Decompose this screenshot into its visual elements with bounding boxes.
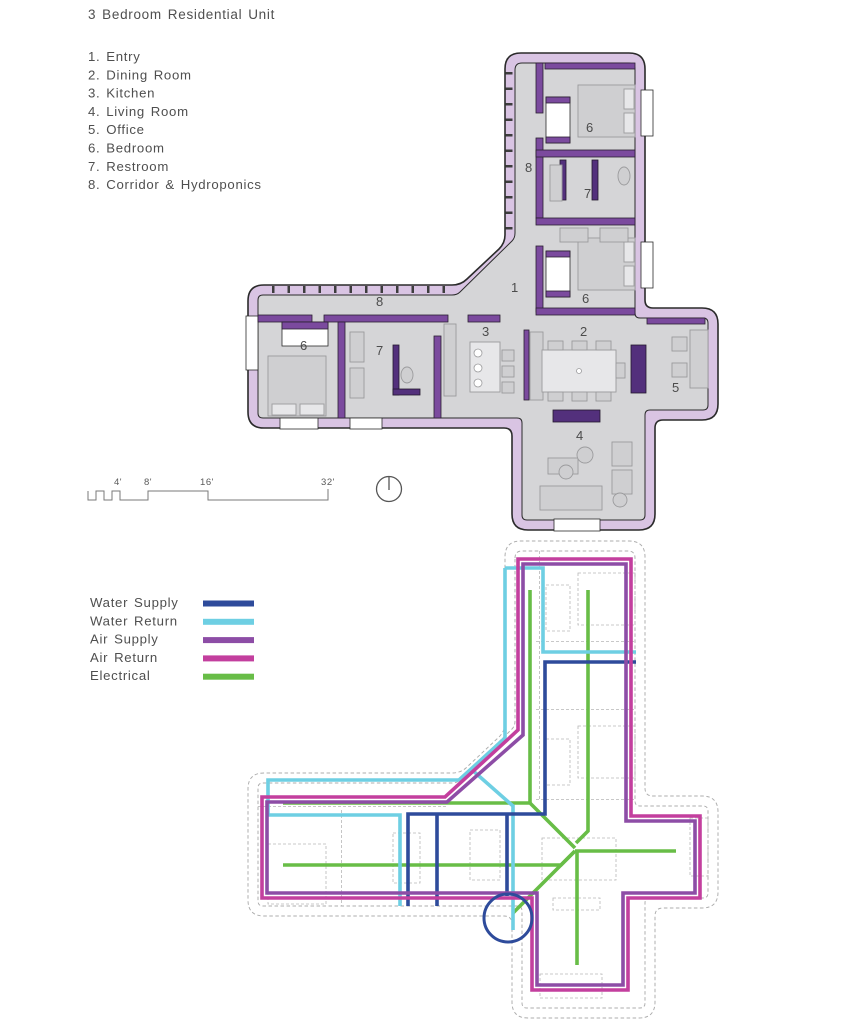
wc-wall [393, 389, 420, 395]
room-list-item: 5. Office [88, 122, 145, 137]
legend-label: Electrical [90, 668, 151, 683]
chair [672, 363, 687, 377]
stool [502, 366, 514, 377]
scale-label: 4' [114, 477, 122, 488]
bedroom-wall [338, 322, 345, 418]
kitchen-wall [468, 315, 500, 322]
room-number-restroom: 7 [584, 186, 592, 201]
pillow [300, 404, 324, 415]
water-return-line [268, 568, 505, 906]
north-arrow-icon [377, 477, 402, 502]
closet [546, 251, 570, 297]
table-centerpiece [577, 369, 582, 374]
window [246, 316, 258, 370]
scale-bar-line [88, 489, 328, 500]
closet-wall [282, 322, 328, 329]
chair [596, 341, 611, 350]
ghost-bed [268, 844, 326, 904]
scale-label: 16' [200, 477, 214, 488]
legend-swatch-electrical [203, 674, 254, 680]
window [641, 90, 653, 136]
closet-wall [546, 97, 570, 103]
window [554, 519, 600, 531]
counter [530, 332, 543, 400]
closet [546, 97, 570, 143]
legend-swatch-air-supply [203, 637, 254, 643]
corridor-wall [536, 63, 543, 113]
dresser [600, 228, 628, 242]
island-knob [474, 349, 482, 357]
chair [616, 363, 625, 378]
pillow [272, 404, 296, 415]
electrical-line [576, 590, 588, 843]
chair [596, 392, 611, 401]
room-list-item: 2. Dining Room [88, 67, 192, 82]
chair [672, 337, 687, 351]
mep-legend: Water Supply Water Return Air Supply Air… [90, 595, 254, 683]
ghost-closet [546, 739, 570, 785]
pantry-wall [524, 330, 529, 400]
chair [548, 341, 563, 350]
toilet [401, 367, 413, 383]
room-list-item: 3. Kitchen [88, 86, 155, 101]
bedroom-wall [545, 63, 635, 69]
room-number-office: 5 [672, 380, 680, 395]
closet-wall [546, 251, 570, 257]
electrical-line [283, 851, 575, 865]
room-number-bedroom: 6 [300, 338, 308, 353]
pillow [624, 113, 634, 133]
stool [502, 350, 514, 361]
pillow [624, 266, 634, 286]
architectural-sheet: 3 Bedroom Residential Unit 1. Entry 2. D… [0, 0, 856, 1023]
corridor-wall [258, 315, 312, 322]
restroom-wall [592, 160, 598, 200]
wc-wall [393, 345, 399, 395]
corridor-wall [536, 246, 543, 312]
dresser [560, 228, 588, 242]
legend-label: Water Supply [90, 595, 179, 610]
room-list-item: 8. Corridor & Hydroponics [88, 177, 262, 192]
legend-label: Air Supply [90, 632, 159, 647]
legend-swatch-air-return [203, 655, 254, 661]
stool [502, 382, 514, 393]
water-return-lines [268, 568, 636, 930]
room-list-item: 6. Bedroom [88, 141, 165, 156]
room-number-living: 4 [576, 428, 584, 443]
mep-diagram [248, 541, 718, 1018]
legend-swatch-water-supply [203, 601, 254, 607]
desk [690, 330, 708, 388]
side-table [613, 493, 627, 507]
island-knob [474, 379, 482, 387]
room-number-bedroom: 6 [582, 291, 590, 306]
island-knob [474, 364, 482, 372]
shower [350, 368, 364, 398]
office-wall [647, 318, 705, 324]
legend-label: Air Return [90, 650, 158, 665]
closet-wall [546, 137, 570, 143]
armchair [612, 470, 632, 494]
page-title: 3 Bedroom Residential Unit [88, 7, 275, 22]
dining-office-wall [631, 345, 646, 393]
vanity [550, 165, 562, 201]
toilet [618, 167, 630, 185]
electrical-line [513, 851, 575, 913]
chair [548, 392, 563, 401]
chair [572, 341, 587, 350]
scale-bar: 4' 8' 16' 32' [88, 477, 335, 500]
pillow [624, 89, 634, 109]
counter [444, 324, 456, 396]
scale-label: 32' [321, 477, 335, 488]
window [641, 242, 653, 288]
window [280, 418, 318, 429]
room-divider-wall [536, 308, 635, 315]
ghost-island [470, 830, 500, 880]
window [350, 418, 382, 429]
vanity [350, 332, 364, 362]
room-number-bedroom: 6 [586, 120, 594, 135]
sofa [540, 486, 602, 510]
ghost-closet [546, 585, 570, 631]
pillow [624, 242, 634, 262]
room-divider-wall [536, 150, 635, 157]
room-number-kitchen: 3 [482, 324, 490, 339]
room-divider-wall [536, 218, 635, 225]
room-number-restroom: 7 [376, 343, 384, 358]
room-number-entry: 1 [511, 280, 519, 295]
corridor-wall [324, 315, 448, 322]
title-block: 3 Bedroom Residential Unit 1. Entry 2. D… [88, 7, 275, 192]
legend-swatch-water-return [203, 619, 254, 625]
chair [572, 392, 587, 401]
restroom-wall [434, 336, 441, 418]
room-list-item: 1. Entry [88, 49, 141, 64]
scale-label: 8' [144, 477, 152, 488]
room-list-item: 7. Restroom [88, 159, 169, 174]
coffee-table [577, 447, 593, 463]
armchair [612, 442, 632, 466]
room-number-corridor: 8 [376, 294, 384, 309]
media-console [553, 410, 600, 422]
legend-label: Water Return [90, 613, 178, 628]
closet-wall [546, 291, 570, 297]
air-return-loop [262, 559, 700, 990]
room-list-item: 4. Living Room [88, 104, 189, 119]
floor-plan: 1 8 6 7 6 2 8 6 7 3 5 4 [246, 53, 718, 531]
room-number-dining: 2 [580, 324, 588, 339]
coffee-table [559, 465, 573, 479]
electrical-line [283, 803, 575, 848]
water-heater-marker [484, 894, 532, 942]
room-number-corridor: 8 [525, 160, 533, 175]
